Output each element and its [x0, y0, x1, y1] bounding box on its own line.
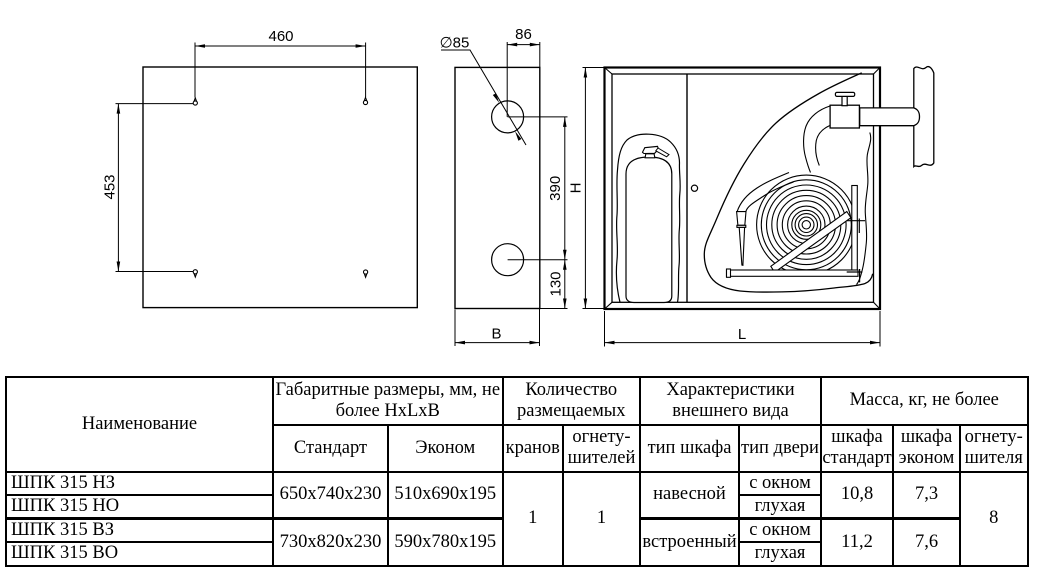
svg-text:L: L	[738, 326, 746, 343]
svg-text:∅85: ∅85	[440, 35, 470, 52]
svg-text:130: 130	[548, 271, 565, 296]
svg-text:453: 453	[102, 174, 119, 199]
svg-text:H: H	[568, 183, 585, 194]
svg-text:86: 86	[515, 26, 532, 43]
svg-text:B: B	[491, 326, 501, 343]
svg-text:460: 460	[268, 28, 293, 45]
svg-text:390: 390	[547, 176, 564, 201]
